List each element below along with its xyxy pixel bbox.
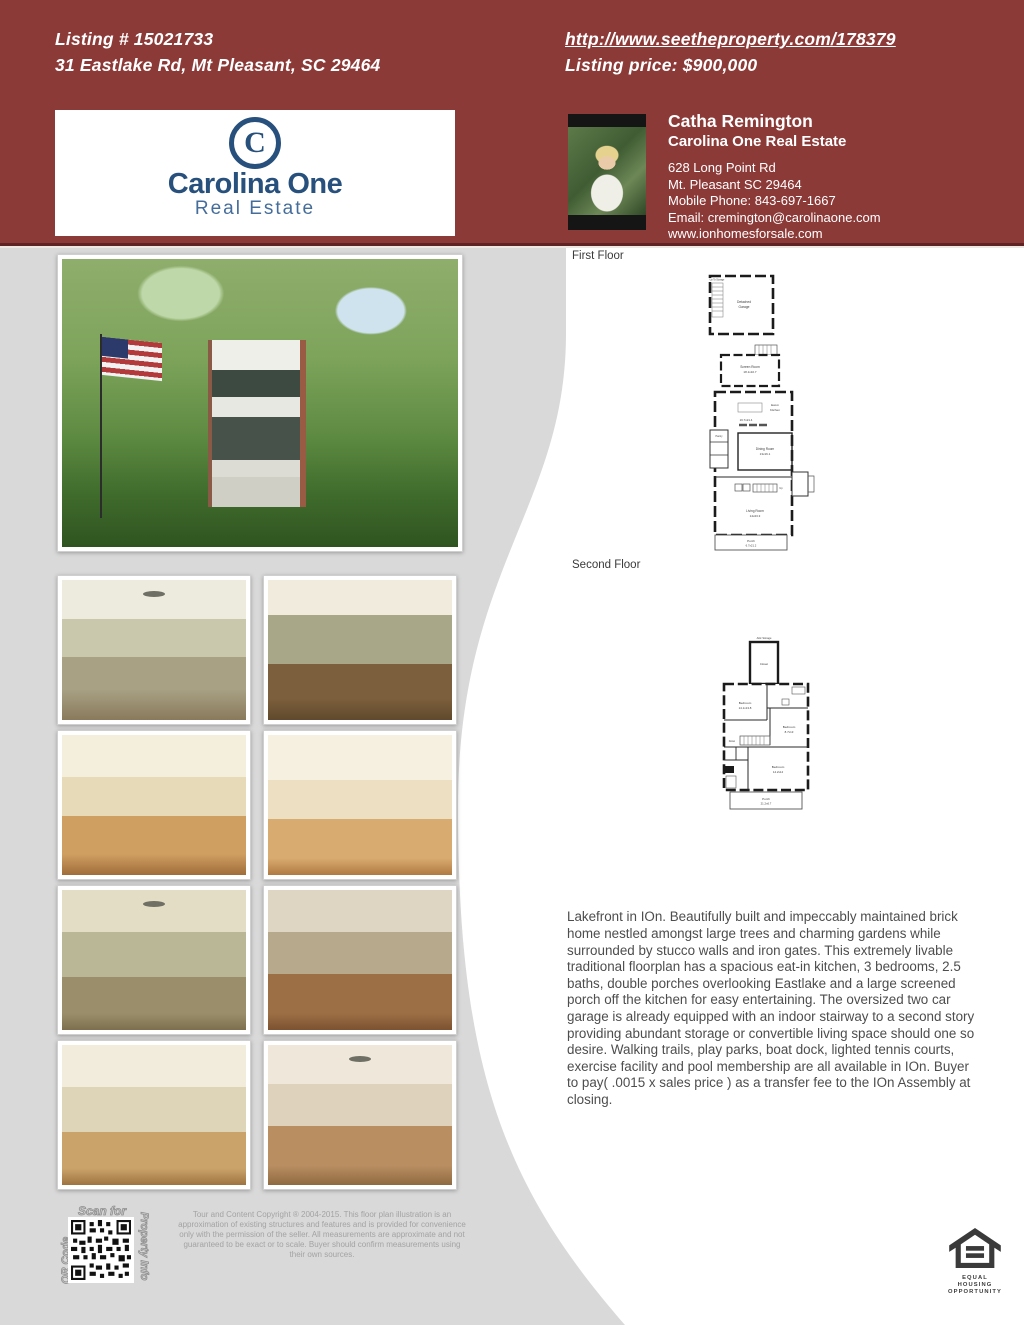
first-floor-plan: Up To Storage Detached Garage Screen Roo… (693, 265, 823, 555)
svg-text:Kitchen: Kitchen (770, 408, 780, 412)
listing-price: Listing price: $900,000 (565, 52, 896, 78)
scan-for-label: Scan for (78, 1204, 126, 1218)
agent-address-line1: 628 Long Point Rd (668, 160, 881, 177)
bedroom2-label: Bedroom (783, 725, 796, 729)
house-with-double-porches (212, 340, 299, 507)
flyer-page: Listing # 15021733 31 Eastlake Rd, Mt Pl… (0, 0, 1024, 1325)
tour-url-link[interactable]: http://www.seetheproperty.com/178379 (565, 29, 896, 49)
photo-bedroom (57, 885, 251, 1035)
pantry-label: Pantry (716, 435, 724, 438)
ceiling-fan (349, 1056, 371, 1062)
brokerage-name: Carolina One (55, 169, 455, 199)
equal-housing-logo: EQUAL HOUSING OPPORTUNITY (944, 1228, 1006, 1296)
photo-dining-room (263, 575, 457, 725)
equal-housing-text: EQUAL HOUSING OPPORTUNITY (944, 1275, 1006, 1296)
second-floor-label: Second Floor (572, 559, 640, 571)
brokerage-logo: C Carolina One Real Estate (55, 110, 455, 236)
svg-text:18.1x10.7: 18.1x10.7 (743, 370, 757, 374)
svg-text:6.7x21.2: 6.7x21.2 (746, 544, 757, 548)
svg-text:13x16.1: 13x16.1 (760, 452, 771, 456)
listing-number: Listing # 15021733 (55, 26, 380, 52)
stairs-down-label: Down (729, 740, 736, 743)
photo-office-library (57, 1040, 251, 1190)
agent-headshot-image (568, 127, 646, 215)
attic-storage-label: Attic Storage (757, 636, 772, 640)
photo-kitchen-cabinets (263, 730, 457, 880)
qr-code-image (71, 1220, 131, 1280)
brokerage-subtitle: Real Estate (55, 199, 455, 219)
photo-living-room (57, 575, 251, 725)
equal-housing-house-icon (949, 1228, 1001, 1268)
property-description: Lakefront in IOn. Beautifully built and … (567, 909, 981, 1108)
closet-label: Closet (760, 662, 768, 666)
kitchen-label: Eat-in (771, 403, 779, 407)
svg-text:14.1x13.8: 14.1x13.8 (739, 706, 752, 710)
header-banner: Listing # 15021733 31 Eastlake Rd, Mt Pl… (0, 0, 1024, 246)
svg-text:14x23.3: 14x23.3 (750, 514, 761, 518)
photo-canopy-bedroom (263, 1040, 457, 1190)
garage-stair-note: Up To Storage (710, 279, 725, 282)
photo-kitchen-island (57, 730, 251, 880)
agent-phone: Mobile Phone: 843-697-1667 (668, 193, 881, 210)
photo-main-exterior (57, 254, 463, 552)
photo-sitting-room (263, 885, 457, 1035)
american-flag (102, 336, 162, 380)
second-porch-label: Porch (762, 797, 770, 801)
agent-info: Catha Remington Carolina One Real Estate… (668, 111, 881, 243)
carolina-one-monogram-icon: C (229, 117, 281, 169)
first-porch-label: Porch (747, 539, 755, 543)
svg-text:16.7x21.4: 16.7x21.4 (740, 418, 753, 422)
agent-company: Carolina One Real Estate (668, 132, 881, 151)
agent-address-line2: Mt. Pleasant SC 29464 (668, 177, 881, 194)
agent-website-link[interactable]: www.ionhomesforsale.com (668, 226, 823, 241)
living-room-label: Living Room (746, 509, 764, 513)
svg-text:8.7x13: 8.7x13 (785, 730, 794, 734)
garage-label: Detached (737, 300, 751, 304)
bedroom3-label: Bedroom (772, 765, 785, 769)
copyright-disclaimer: Tour and Content Copyright ® 2004-2015. … (178, 1210, 466, 1260)
agent-email[interactable]: Email: cremington@carolinaone.com (668, 210, 881, 227)
listing-identity: Listing # 15021733 31 Eastlake Rd, Mt Pl… (55, 26, 380, 78)
bedroom1-label: Bedroom (739, 701, 752, 705)
property-info-label: Property Info (138, 1212, 150, 1284)
screen-room-label: Screen Room (740, 365, 760, 369)
ceiling-fan (143, 901, 165, 907)
first-floor-label: First Floor (572, 250, 624, 262)
photo-main-exterior-image (62, 259, 458, 547)
agent-headshot (568, 114, 646, 230)
listing-address: 31 Eastlake Rd, Mt Pleasant, SC 29464 (55, 52, 380, 78)
svg-text:14.2x14: 14.2x14 (773, 770, 784, 774)
svg-text:21.2x6.7: 21.2x6.7 (761, 802, 772, 806)
listing-links: http://www.seetheproperty.com/178379 Lis… (565, 26, 896, 78)
dining-room-label: Dining Room (756, 447, 775, 451)
agent-name: Catha Remington (668, 111, 881, 132)
second-floor-plan: Attic Storage Closet Bedroom 14.1x13.8 B… (714, 628, 824, 818)
ceiling-fan (143, 591, 165, 597)
svg-text:Garage: Garage (739, 305, 750, 309)
qr-code[interactable] (68, 1217, 134, 1283)
